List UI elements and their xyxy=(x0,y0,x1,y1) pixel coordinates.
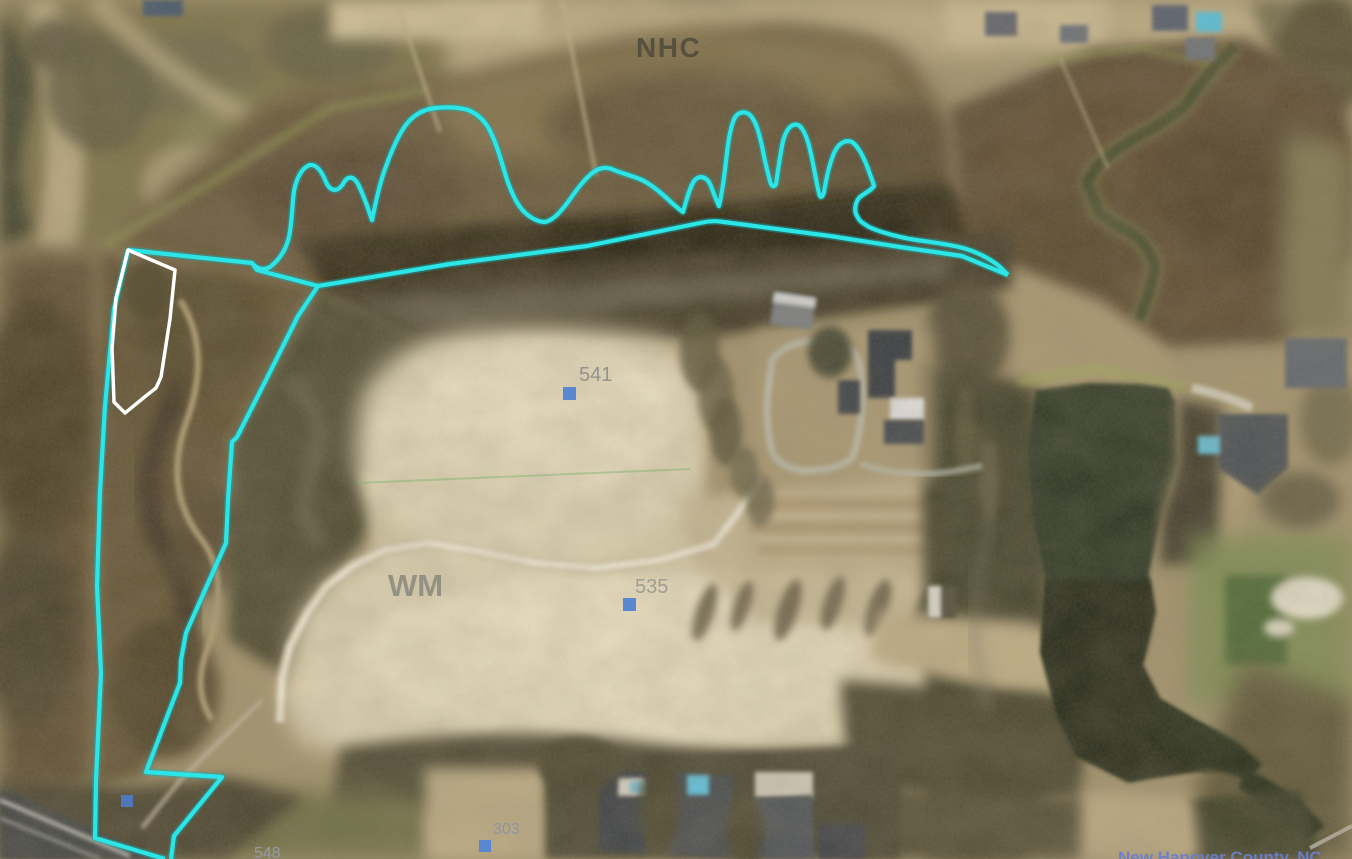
svg-text:548: 548 xyxy=(254,845,281,859)
svg-text:303: 303 xyxy=(493,821,520,838)
svg-text:541: 541 xyxy=(579,364,612,386)
svg-text:NHC: NHC xyxy=(636,32,701,63)
svg-text:New Hanover County, NC: New Hanover County, NC xyxy=(1118,848,1322,859)
svg-text:535: 535 xyxy=(635,576,668,598)
svg-text:WM: WM xyxy=(388,568,443,603)
